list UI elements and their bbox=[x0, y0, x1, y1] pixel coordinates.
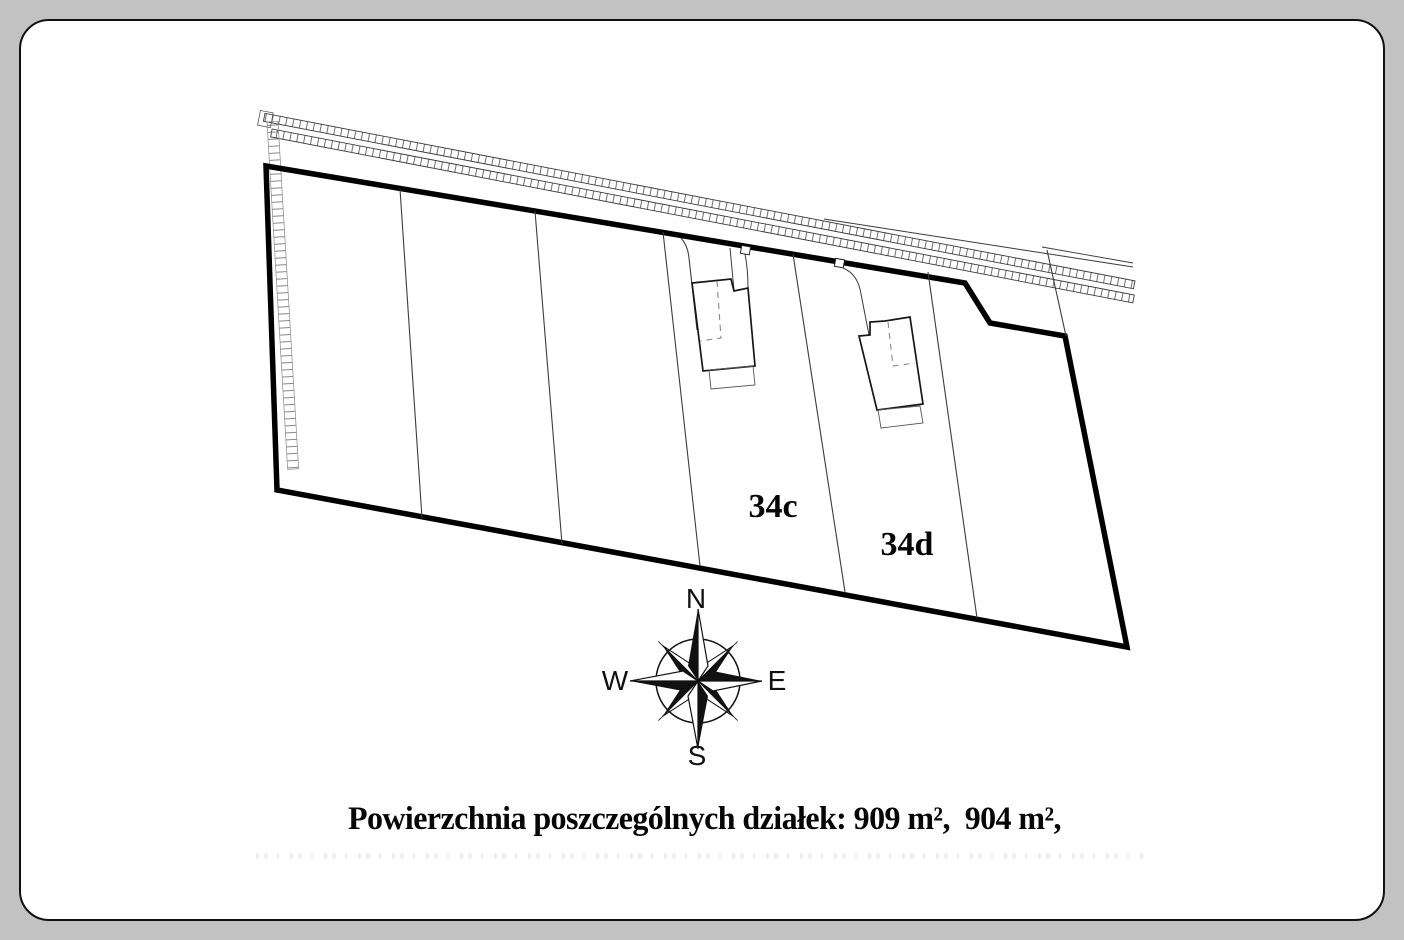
site-plan: 34c 34d bbox=[0, 0, 1404, 940]
compass-rose-icon: N S W E bbox=[602, 583, 787, 771]
plot-division-line bbox=[928, 272, 977, 618]
plot-division-line bbox=[1047, 250, 1066, 336]
plot-label-34c: 34c bbox=[748, 488, 797, 525]
boundary-marker-icon bbox=[740, 245, 750, 254]
compass-label-south: S bbox=[688, 740, 707, 771]
plot-division-line bbox=[793, 254, 845, 592]
building-annex-34d bbox=[878, 406, 923, 428]
compass-label-north: N bbox=[686, 583, 706, 614]
parcel-boundary bbox=[266, 166, 1127, 647]
road-strip bbox=[256, 110, 1137, 302]
building-annex-34c bbox=[709, 366, 755, 389]
building-footprint-34c bbox=[692, 279, 755, 389]
areas-caption: Powierzchnia poszczególnych działek: 909… bbox=[348, 801, 1061, 838]
plot-division-line bbox=[535, 211, 562, 544]
cropped-text-remnant bbox=[256, 853, 1144, 859]
compass-label-east: E bbox=[768, 665, 787, 696]
boundary-marker-icon bbox=[834, 258, 844, 267]
plot-label-34d: 34d bbox=[881, 526, 934, 563]
compass-label-west: W bbox=[602, 665, 629, 696]
plan-page: 34c 34d bbox=[0, 0, 1404, 940]
plot-division-line bbox=[400, 189, 422, 518]
road-edge-line bbox=[824, 219, 1133, 267]
